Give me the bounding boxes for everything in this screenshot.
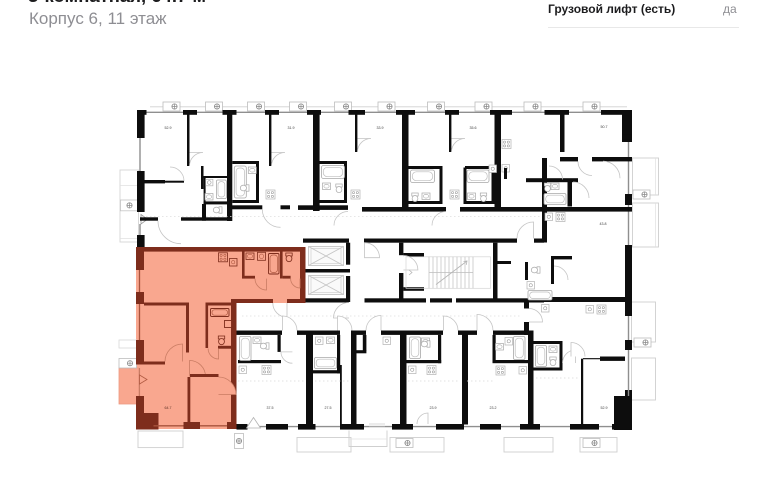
svg-text:43.8: 43.8 [600, 222, 607, 226]
svg-text:52.9: 52.9 [601, 406, 608, 410]
svg-text:23.2: 23.2 [490, 406, 497, 410]
svg-text:23.9: 23.9 [430, 406, 437, 410]
svg-text:27.5: 27.5 [325, 406, 332, 410]
svg-text:31.9: 31.9 [288, 126, 295, 130]
svg-text:33.9: 33.9 [377, 126, 384, 130]
svg-text:52.9: 52.9 [165, 126, 172, 130]
svg-text:50.7: 50.7 [601, 125, 608, 129]
svg-text:35.6: 35.6 [470, 126, 477, 130]
svg-text:37.5: 37.5 [267, 406, 274, 410]
svg-text:64.7: 64.7 [165, 406, 172, 410]
